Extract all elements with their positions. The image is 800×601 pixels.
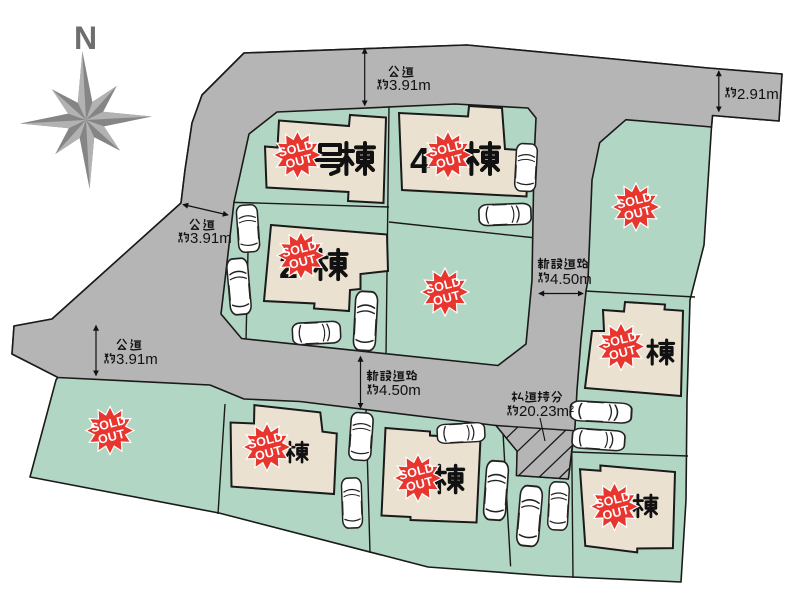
svg-text:4.50m: 4.50m <box>379 382 421 399</box>
svg-text:2.91m: 2.91m <box>737 86 779 103</box>
svg-text:20.23m²: 20.23m² <box>519 403 574 420</box>
svg-text:3.91m: 3.91m <box>389 77 431 94</box>
svg-text:3.91m: 3.91m <box>116 351 158 368</box>
svg-text:3.91m: 3.91m <box>190 230 232 247</box>
svg-text:N: N <box>74 20 97 56</box>
svg-text:4.50m: 4.50m <box>550 271 592 288</box>
